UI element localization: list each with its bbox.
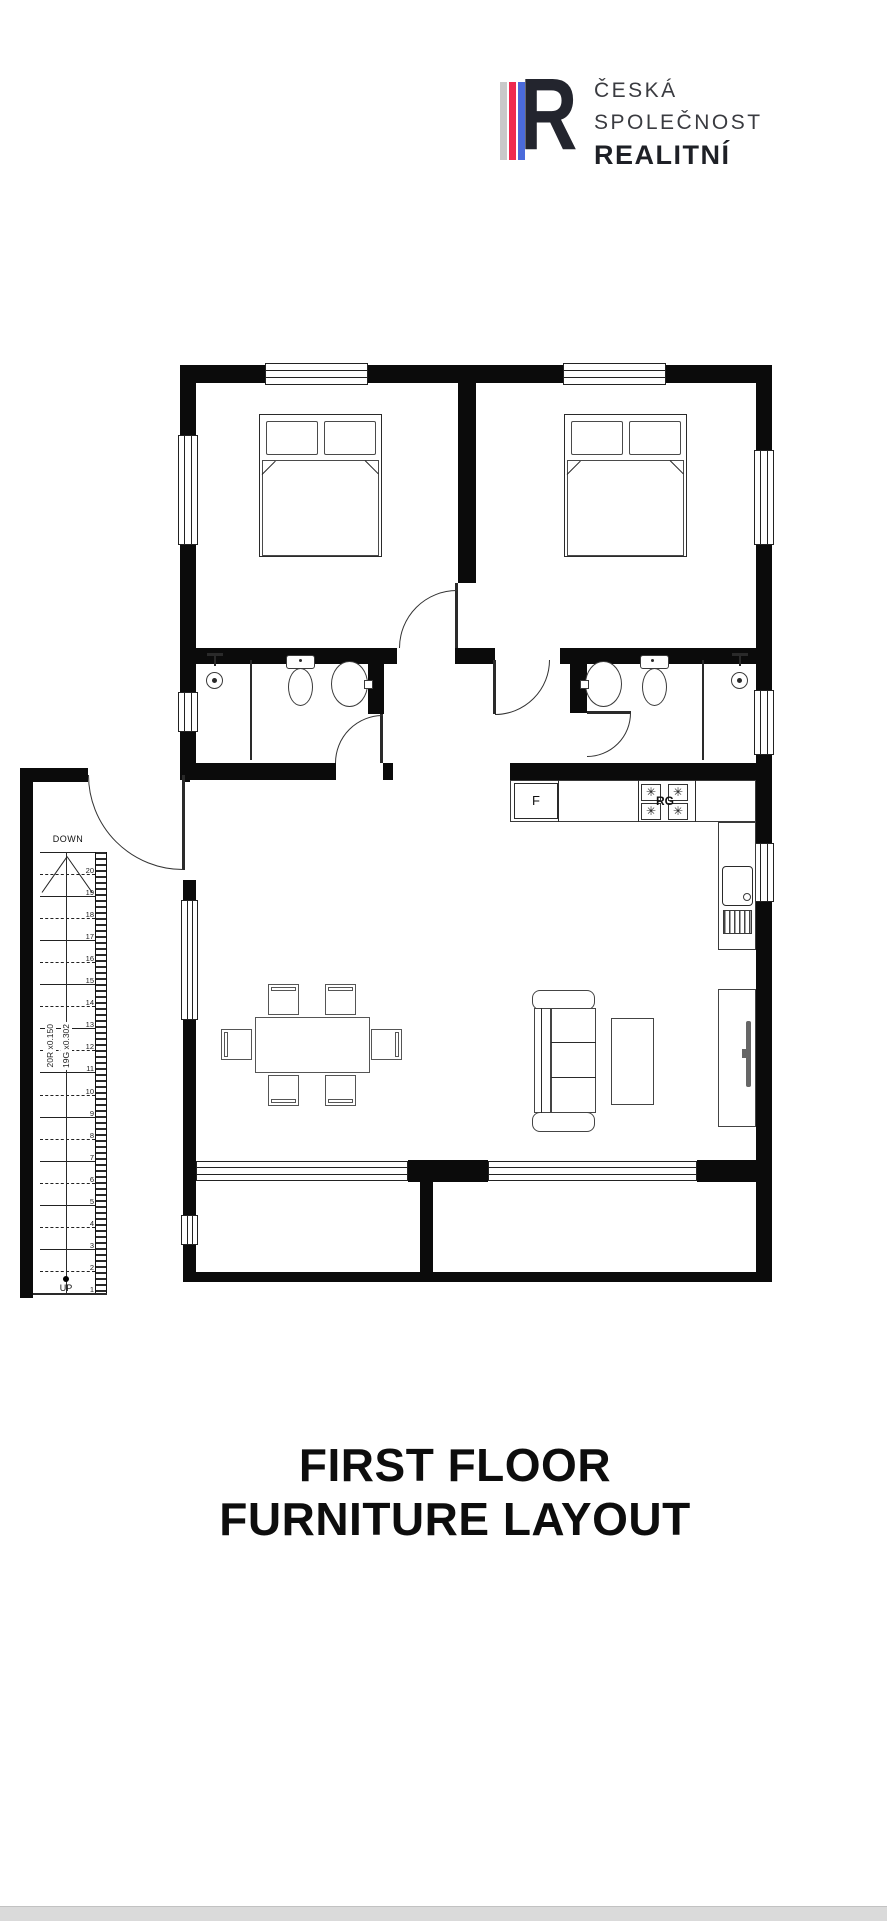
wall bbox=[458, 383, 476, 583]
toilet-icon bbox=[286, 655, 315, 669]
pillow bbox=[324, 421, 376, 455]
tv-icon bbox=[746, 1021, 751, 1087]
window bbox=[754, 690, 774, 755]
stair-tread: 16 bbox=[40, 940, 95, 962]
stair-tread: 18 bbox=[40, 896, 95, 918]
stair-tread: 4 bbox=[40, 1205, 95, 1227]
stair-tread: 2 bbox=[40, 1249, 95, 1271]
wall bbox=[368, 365, 563, 383]
wall bbox=[180, 365, 196, 435]
wall bbox=[756, 902, 772, 1282]
counter-divider bbox=[638, 780, 639, 822]
blanket bbox=[262, 460, 379, 556]
toilet-button bbox=[651, 659, 654, 662]
wall bbox=[196, 763, 336, 780]
wall bbox=[383, 763, 393, 780]
stair-tread: 20 bbox=[40, 852, 95, 874]
chair bbox=[221, 1029, 252, 1060]
window bbox=[563, 363, 666, 385]
toilet-bowl bbox=[642, 668, 667, 706]
sink-icon bbox=[331, 661, 368, 707]
faucet-icon bbox=[364, 680, 373, 689]
wall bbox=[756, 755, 772, 843]
window bbox=[181, 900, 198, 1020]
wall bbox=[33, 1293, 107, 1295]
sofa-seats bbox=[551, 1008, 596, 1113]
chair bbox=[371, 1029, 402, 1060]
sofa-armrest bbox=[532, 990, 595, 1010]
fridge-label: F bbox=[514, 793, 558, 808]
stair-tread: 15 bbox=[40, 962, 95, 984]
window bbox=[754, 843, 774, 902]
range-label: RG bbox=[645, 794, 685, 808]
sofa-seat-line bbox=[551, 1077, 596, 1078]
chair bbox=[325, 1075, 356, 1106]
toilet-button bbox=[299, 659, 302, 662]
window bbox=[196, 1161, 408, 1181]
shower-drain-dot bbox=[737, 678, 742, 683]
faucet-icon bbox=[580, 680, 589, 689]
toilet-icon bbox=[640, 655, 669, 669]
chair bbox=[325, 984, 356, 1015]
wall bbox=[697, 1160, 756, 1182]
wall bbox=[756, 545, 772, 690]
wall bbox=[510, 763, 756, 780]
stair-tread: 3 bbox=[40, 1227, 95, 1249]
wall bbox=[756, 365, 772, 450]
counter-divider bbox=[695, 780, 696, 822]
window bbox=[178, 692, 198, 732]
partition-wall bbox=[250, 660, 252, 760]
wall bbox=[408, 1160, 488, 1182]
partition-wall bbox=[702, 660, 704, 760]
sofa-seat-line bbox=[551, 1042, 596, 1043]
shower-icon bbox=[739, 656, 741, 666]
window bbox=[181, 1215, 198, 1245]
coffee-table bbox=[611, 1018, 654, 1105]
plan-title-line2: FURNITURE LAYOUT bbox=[130, 1492, 780, 1546]
window bbox=[754, 450, 774, 545]
shower-icon bbox=[214, 656, 216, 666]
counter-divider bbox=[558, 780, 559, 822]
stair-tread: 14 bbox=[40, 984, 95, 1006]
stair-tread: 17 bbox=[40, 918, 95, 940]
plan-title: FIRST FLOOR FURNITURE LAYOUT bbox=[130, 1438, 780, 1546]
stair-tread: 6 bbox=[40, 1161, 95, 1183]
wall bbox=[183, 880, 196, 900]
window bbox=[178, 435, 198, 545]
tv-mount bbox=[742, 1049, 746, 1058]
stair-number: 1 bbox=[90, 1286, 94, 1294]
stair-side-wall bbox=[95, 852, 107, 1293]
stair-riser-dimension: 20R x0.150 bbox=[45, 1022, 56, 1069]
faucet-icon bbox=[743, 893, 751, 901]
drainboard bbox=[723, 910, 752, 934]
stair-tread: 10 bbox=[40, 1072, 95, 1094]
chair bbox=[268, 1075, 299, 1106]
shower-drain-dot bbox=[212, 678, 217, 683]
window bbox=[488, 1161, 697, 1181]
stair-tread: 9 bbox=[40, 1095, 95, 1117]
wall bbox=[183, 1020, 196, 1215]
wall bbox=[183, 1245, 196, 1272]
stair-tread: 7 bbox=[40, 1139, 95, 1161]
sink-icon bbox=[585, 661, 622, 707]
wall bbox=[180, 545, 196, 692]
dining-table bbox=[255, 1017, 370, 1073]
pillow bbox=[266, 421, 318, 455]
stairs-up-label: UP bbox=[43, 1283, 89, 1293]
bottom-edge-bar bbox=[0, 1906, 887, 1921]
wall bbox=[183, 1272, 772, 1282]
chair bbox=[268, 984, 299, 1015]
pillow bbox=[629, 421, 681, 455]
stair-tread: 8 bbox=[40, 1117, 95, 1139]
toilet-bowl bbox=[288, 668, 313, 706]
wall bbox=[455, 648, 495, 664]
stairs-down-label: DOWN bbox=[33, 834, 103, 844]
stair-start-dot bbox=[63, 1276, 69, 1282]
window bbox=[265, 363, 368, 385]
blanket bbox=[567, 460, 684, 556]
pillow bbox=[571, 421, 623, 455]
sofa-back-line bbox=[541, 1008, 542, 1113]
wall bbox=[20, 768, 33, 1298]
stair-center-line bbox=[66, 852, 67, 1293]
sofa-armrest bbox=[532, 1112, 595, 1132]
stair-tread: 5 bbox=[40, 1183, 95, 1205]
wall bbox=[420, 1182, 433, 1272]
sofa-back bbox=[534, 1008, 551, 1113]
plan-title-line1: FIRST FLOOR bbox=[130, 1438, 780, 1492]
stair-going-dimension: 19G x0.302 bbox=[61, 1022, 72, 1070]
page: R ČESKÁ SPOLEČNOST REALITNÍ bbox=[0, 0, 887, 1920]
staircase: 20 19 18 17 16 15 14 13 12 11 10 9 8 7 6… bbox=[40, 852, 95, 1293]
floor-plan: F ✳ ✳ ✳ ✳ RG bbox=[0, 0, 887, 1920]
